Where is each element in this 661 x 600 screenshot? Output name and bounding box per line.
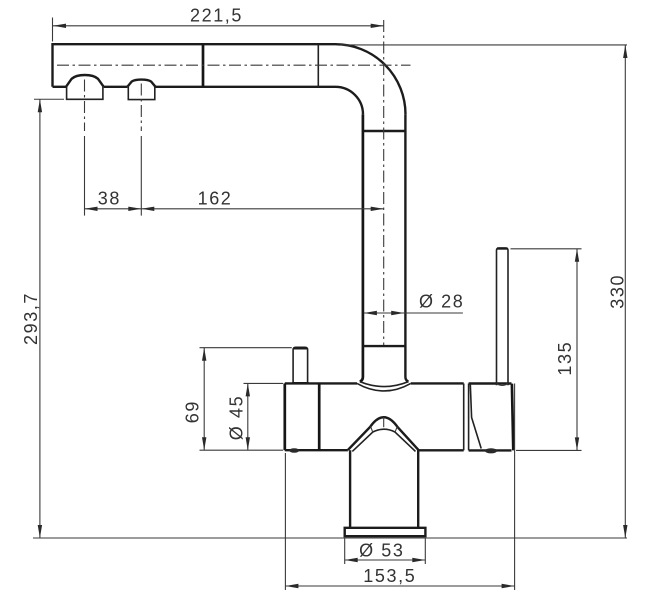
svg-text:153,5: 153,5 bbox=[363, 566, 416, 586]
svg-text:293,7: 293,7 bbox=[21, 292, 41, 345]
svg-text:135: 135 bbox=[555, 341, 575, 376]
svg-text:Ø 45: Ø 45 bbox=[227, 395, 247, 440]
svg-text:162: 162 bbox=[198, 189, 233, 209]
svg-text:330: 330 bbox=[608, 274, 628, 309]
svg-text:Ø 28: Ø 28 bbox=[419, 292, 464, 312]
svg-text:38: 38 bbox=[98, 189, 121, 209]
svg-text:Ø 53: Ø 53 bbox=[359, 541, 404, 561]
svg-text:221,5: 221,5 bbox=[190, 6, 243, 26]
svg-text:69: 69 bbox=[183, 400, 203, 423]
